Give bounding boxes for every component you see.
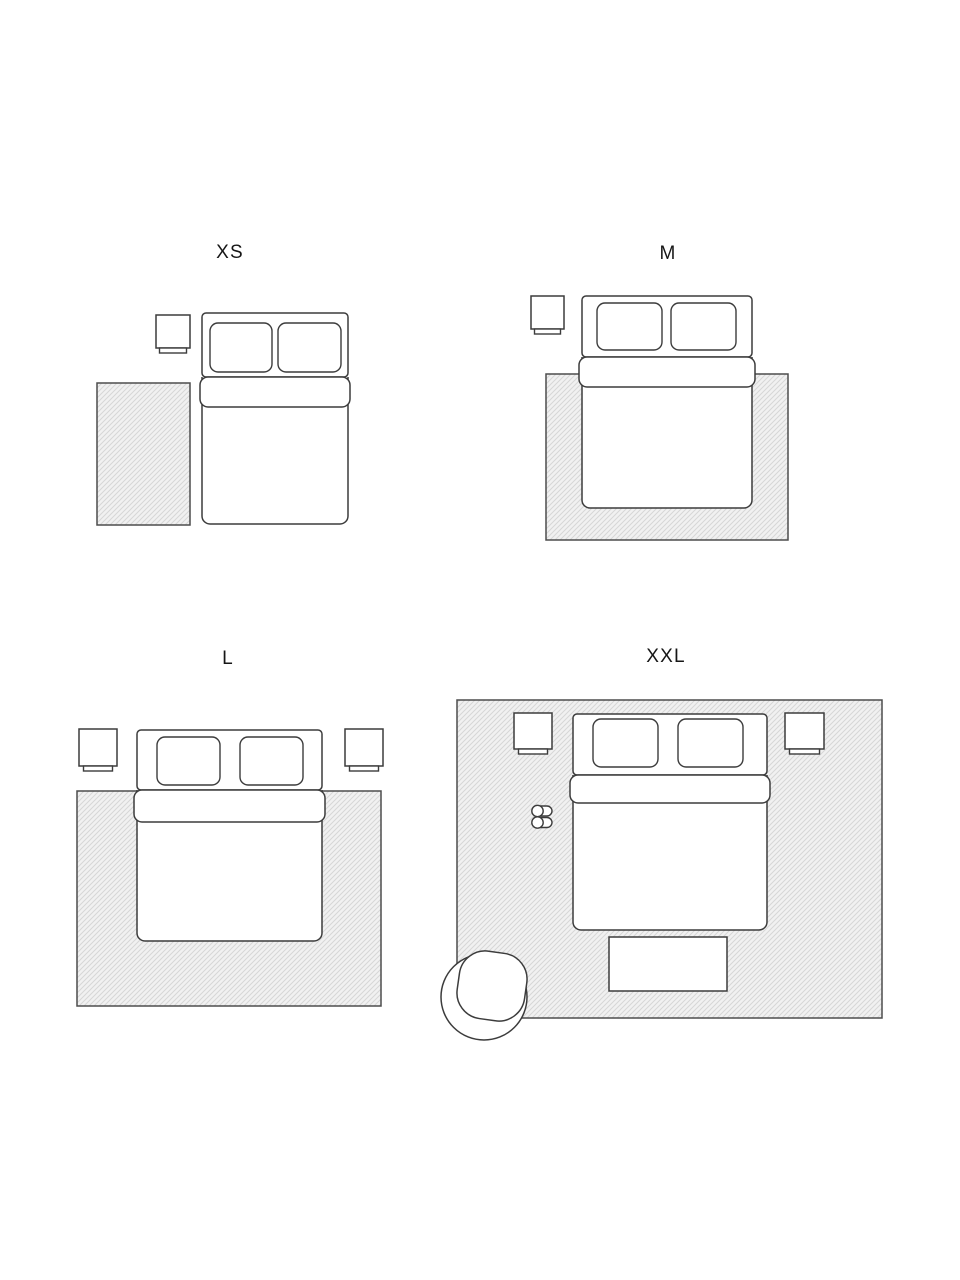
nightstand-base	[84, 766, 113, 771]
nightstand-top	[345, 729, 383, 766]
nightstand-top	[79, 729, 117, 766]
panel-xxl: XXL	[441, 646, 882, 1040]
size-guide-canvas: XS M L	[0, 0, 960, 1280]
slipper-heel	[532, 805, 543, 816]
nightstand-top	[156, 315, 190, 348]
panel-xs: XS	[97, 242, 350, 525]
nightstand-left-icon	[514, 713, 552, 754]
nightstand-right-icon	[345, 729, 383, 771]
pillow-icon	[593, 719, 658, 767]
double-bed-icon	[200, 313, 350, 524]
nightstand-base	[790, 749, 820, 754]
double-bed-icon	[134, 730, 325, 941]
nightstand-left-icon	[79, 729, 117, 771]
nightstand-base	[350, 766, 379, 771]
armchair-icon	[441, 948, 530, 1040]
nightstand-top	[514, 713, 552, 749]
rug-size-guide: XS M L	[0, 0, 960, 1280]
pillow-icon	[278, 323, 341, 372]
bed-sheet-fold	[134, 790, 325, 822]
panel-m: M	[531, 243, 788, 540]
bed-sheet-fold	[570, 775, 770, 803]
size-label-xs: XS	[216, 242, 244, 263]
double-bed-icon	[570, 714, 770, 930]
nightstand-icon	[531, 296, 564, 334]
nightstand-top	[531, 296, 564, 329]
pillow-icon	[597, 303, 662, 350]
nightstand-right-icon	[785, 713, 824, 754]
double-bed-icon	[579, 296, 755, 508]
bed-sheet-fold	[200, 377, 350, 407]
pillow-icon	[210, 323, 272, 372]
rug-icon	[97, 383, 190, 525]
pillow-icon	[157, 737, 220, 785]
size-label-l: L	[222, 648, 234, 669]
nightstand-base	[519, 749, 548, 754]
size-label-xxl: XXL	[646, 646, 686, 667]
nightstand-base	[535, 329, 561, 334]
nightstand-top	[785, 713, 824, 749]
slipper-heel	[532, 817, 543, 828]
panel-l: L	[77, 648, 383, 1006]
nightstand-icon	[156, 315, 190, 353]
bed-sheet-fold	[579, 357, 755, 387]
size-label-m: M	[659, 243, 676, 264]
pillow-icon	[240, 737, 303, 785]
nightstand-base	[160, 348, 187, 353]
pillow-icon	[678, 719, 743, 767]
pillow-icon	[671, 303, 736, 350]
bench-icon	[609, 937, 727, 991]
